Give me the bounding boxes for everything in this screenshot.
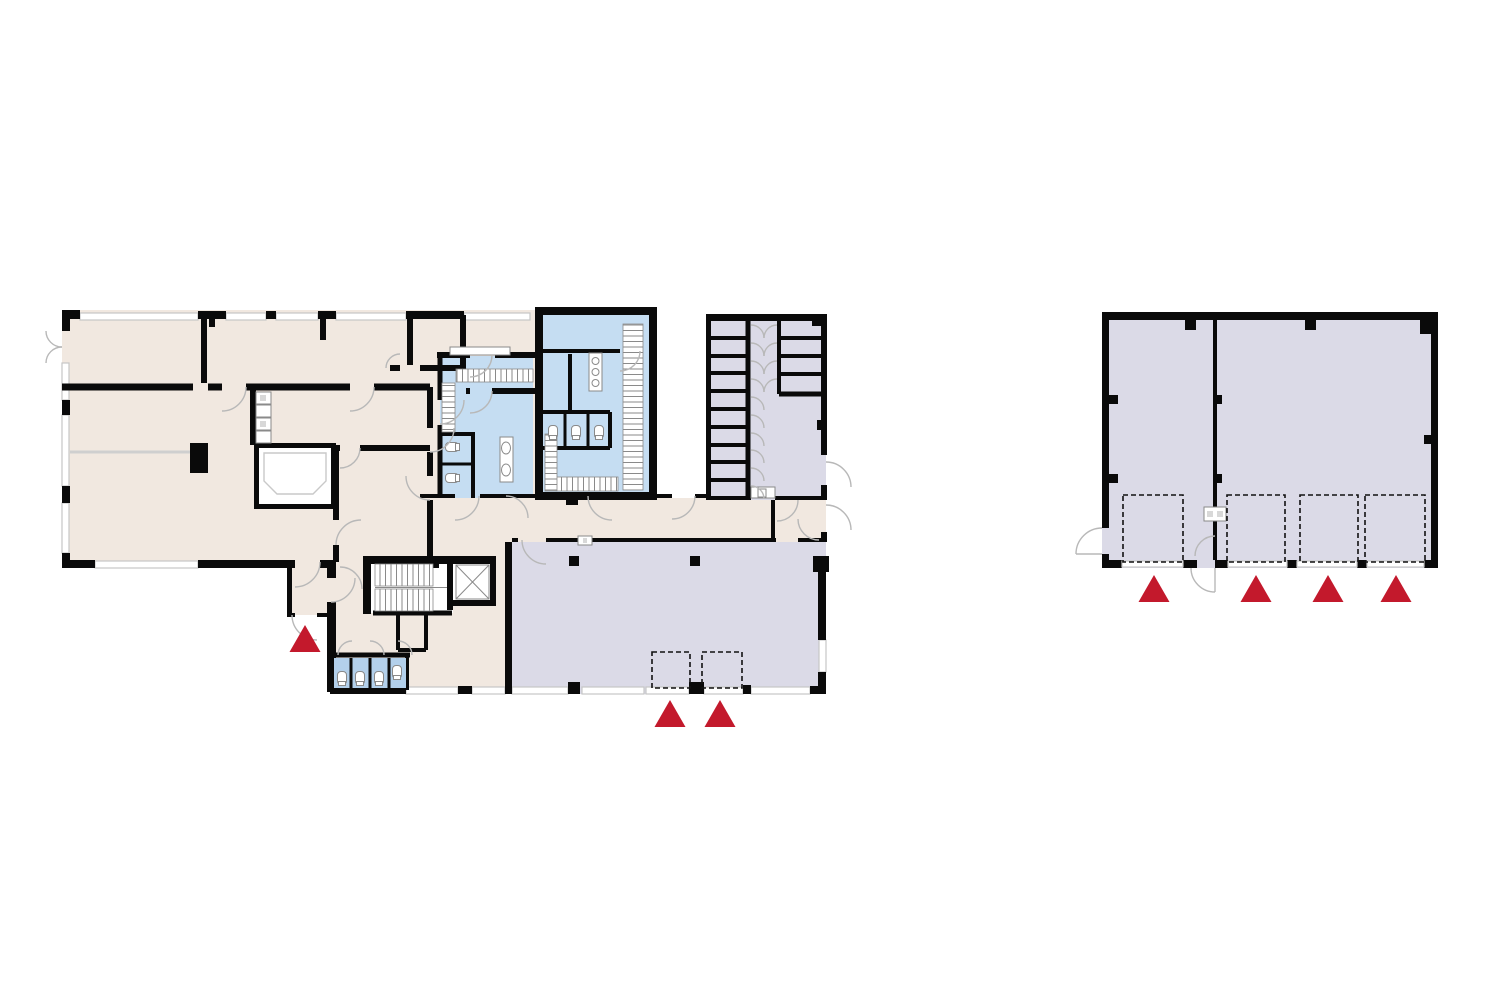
elevator [456, 565, 489, 599]
locker-band [556, 477, 618, 491]
floorplan-page [0, 0, 1500, 1000]
entrance-arrow-icon [1313, 575, 1344, 602]
kitchen-appliances [256, 392, 271, 443]
entrance-arrow-icon [290, 625, 321, 652]
fixtures [1204, 507, 1226, 521]
entrance-double-door [46, 331, 62, 347]
rear-exit-door [1191, 568, 1215, 592]
hall-floor-area [1102, 312, 1438, 568]
side-entrance-door [1076, 528, 1102, 554]
entrance-arrow-icon [1241, 575, 1272, 602]
stair-flight-down [375, 589, 433, 611]
left-plan [46, 307, 851, 694]
hall-floor-area [505, 542, 826, 694]
entrance-arrow-icon [655, 700, 686, 727]
locker-band [456, 369, 533, 382]
entrance-arrow-icon [705, 700, 736, 727]
stair-flight-up [375, 564, 433, 586]
counter [450, 347, 510, 355]
locker-band [623, 324, 643, 490]
sunken-floor-outline [264, 453, 326, 494]
locker-band [442, 383, 455, 432]
wc-stalls [334, 658, 406, 688]
right-plan [1076, 312, 1438, 592]
floorplan-drawing [0, 0, 1500, 1000]
entrance-arrow-icon [1139, 575, 1170, 602]
entrance-arrow-icon [1381, 575, 1412, 602]
locker-band [545, 434, 557, 491]
